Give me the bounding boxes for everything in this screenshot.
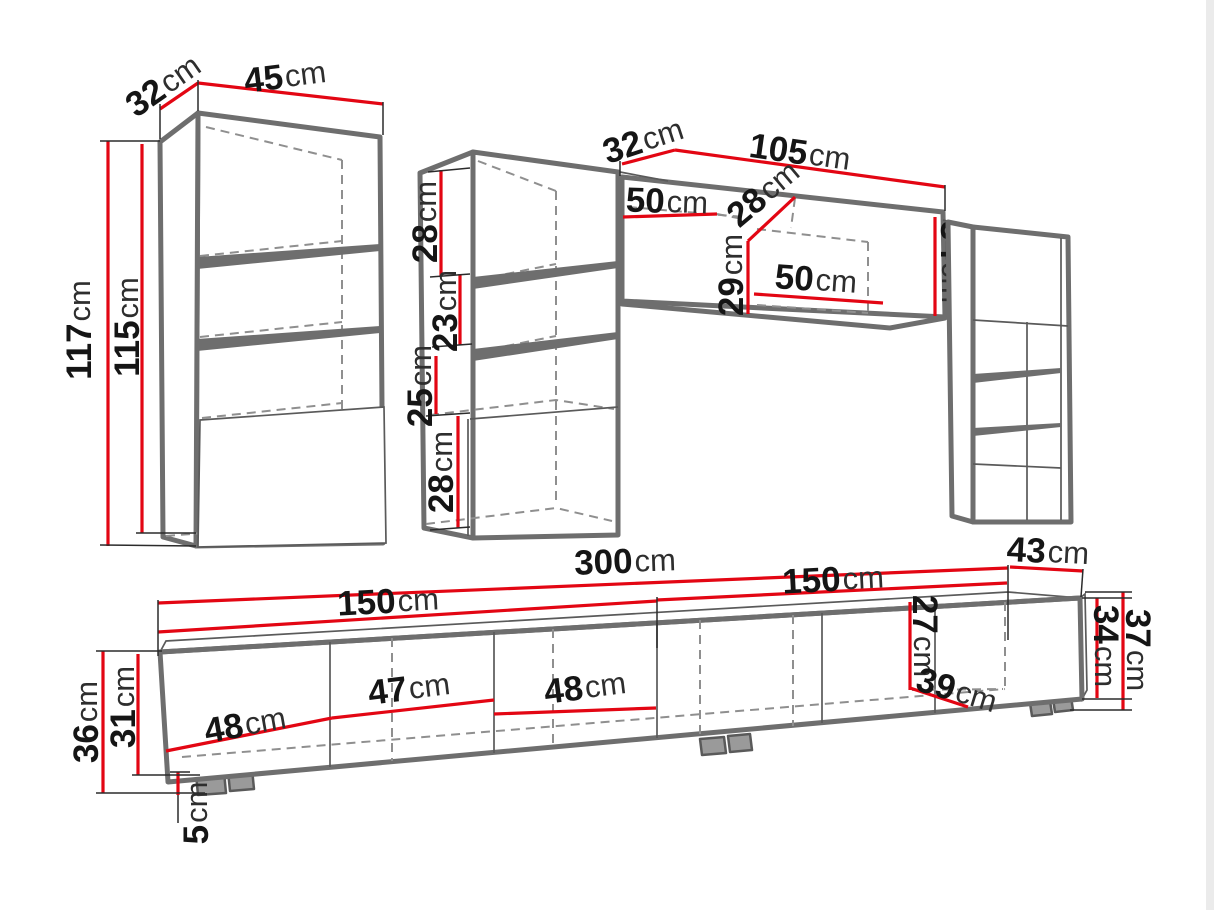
dim-left-cabinet-height: 117cm — [60, 280, 99, 380]
dim-wall-cabinet-right-door: 50cm — [774, 257, 859, 302]
dim-tv-stand-foot-height: 5cm — [177, 782, 216, 845]
dim-tv-stand-total-length: 300cm — [573, 540, 676, 583]
dim-tv-stand-height: 36cm — [67, 681, 106, 763]
page-edge — [1206, 0, 1214, 910]
dim-left-cabinet-inner-height: 115cm — [108, 277, 147, 377]
dim-tv-stand-inner-height: 31cm — [104, 666, 143, 748]
dim-tv-stand-left-length: 150cm — [336, 579, 440, 623]
dim-middle-column-top: 28cm — [406, 181, 445, 263]
extension-line — [100, 545, 196, 546]
foot — [700, 737, 726, 755]
dim-tv-stand-depth: 43cm — [1006, 529, 1090, 572]
furniture-dimension-diagram: 32cm 45cm 117cm 115cm 28cm 23cm 25cm 28c… — [0, 0, 1214, 910]
dim-middle-column-upper: 23cm — [426, 270, 465, 352]
diagram-canvas: 32cm 45cm 117cm 115cm 28cm 23cm 25cm 28c… — [0, 0, 1214, 910]
cabinet-door — [198, 407, 386, 547]
foot — [728, 734, 752, 752]
cabinet-side-panel — [160, 113, 198, 546]
dim-middle-column-middle: 25cm — [401, 345, 440, 427]
dim-tv-stand-right-length: 150cm — [781, 557, 885, 601]
dim-wall-cabinet-inner-height: 29cm — [712, 234, 751, 316]
right-display-cabinet — [943, 220, 1071, 522]
dim-wall-cabinet-left-door: 50cm — [625, 180, 709, 222]
dim-tv-stand-end-height: 37cm — [1119, 609, 1158, 691]
dim-middle-column-bottom: 28cm — [422, 431, 461, 513]
cabinet-side-panel — [948, 222, 973, 522]
middle-cabinet-column: 28cm 23cm 25cm 28cm — [401, 152, 619, 538]
